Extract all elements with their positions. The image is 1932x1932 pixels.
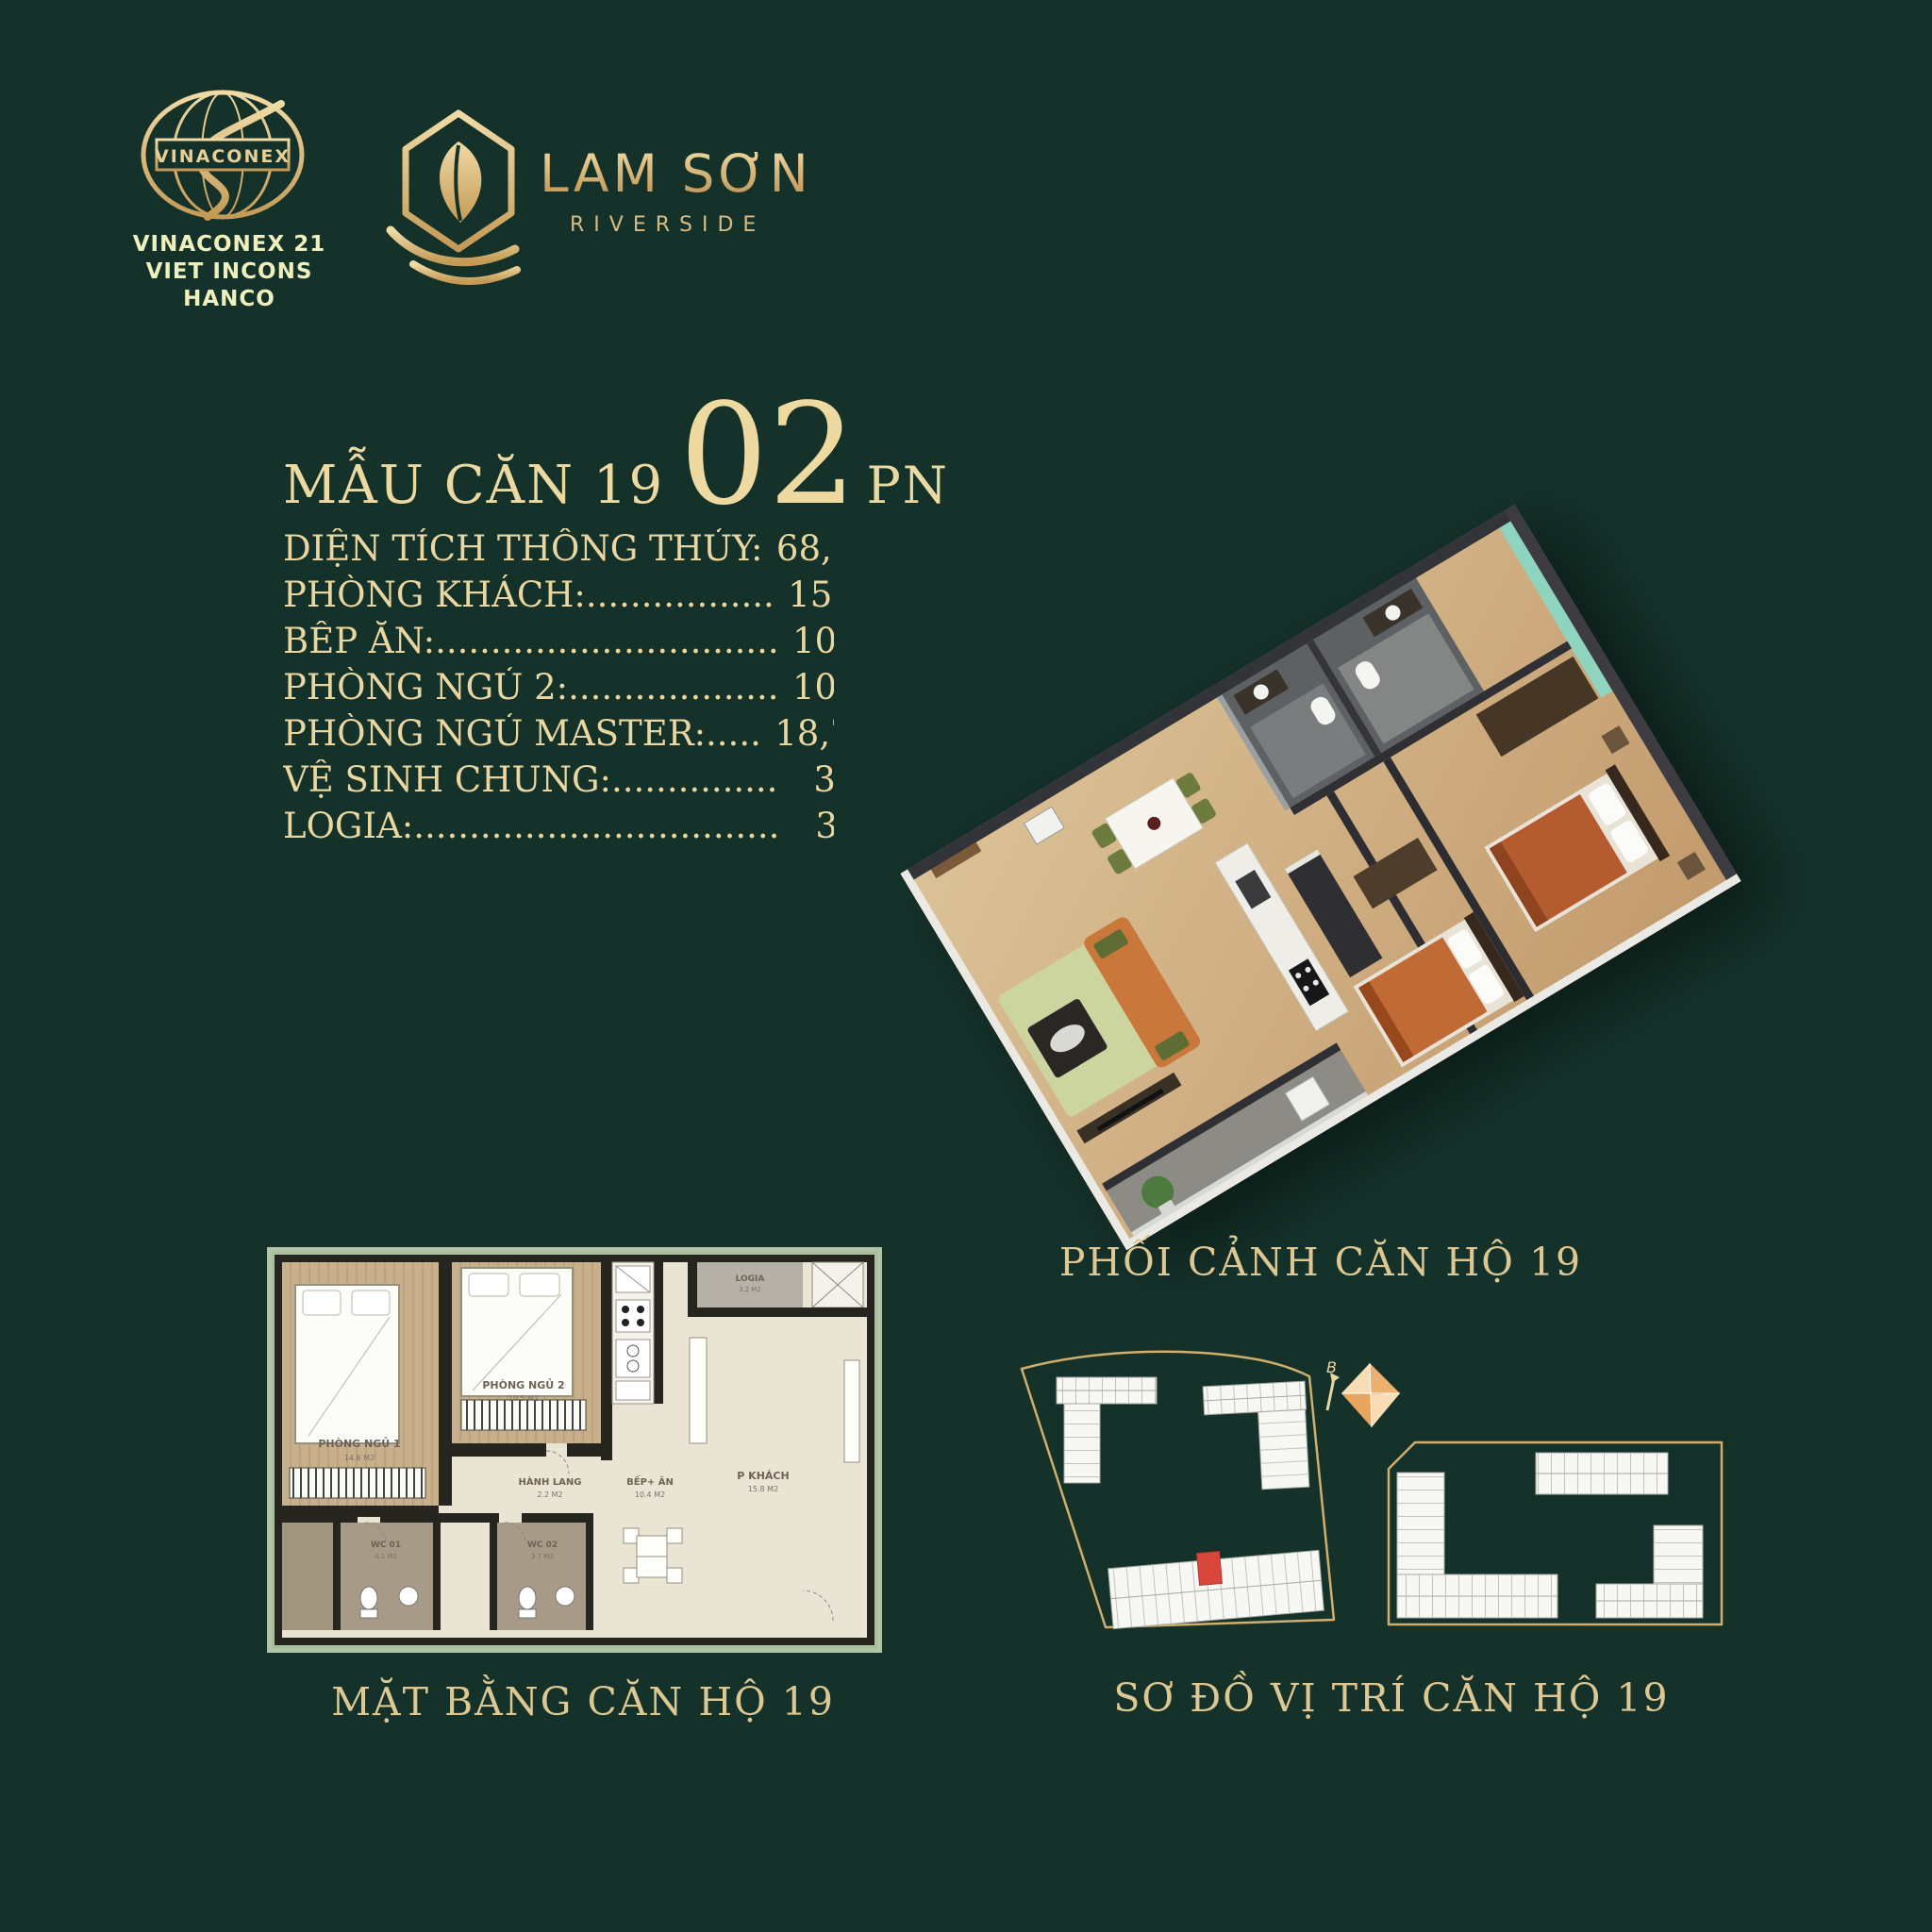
plan-room-area: 15.8 M2 — [748, 1485, 778, 1493]
plan-room-label: WC 01 — [371, 1541, 401, 1550]
plan-bed2 — [461, 1268, 573, 1396]
leaf-icon — [440, 142, 481, 223]
spec-row: VỆ SINH CHUNG:............... 3,7 M2 — [283, 759, 834, 806]
plan-room-label: PHÒNG NGỦ 1 — [318, 1437, 400, 1450]
unit-title-prefix: MẪU CĂN 19 — [283, 455, 664, 516]
developer-line: VIET INCONS — [111, 258, 347, 286]
spec-label: PHÒNG NGỦ 2:................... — [283, 667, 779, 708]
spec-value: 18,7 M2 — [761, 713, 834, 754]
plan-bed1 — [295, 1285, 399, 1443]
plan-logia — [697, 1262, 803, 1307]
project-logo-icon — [385, 106, 528, 294]
plan-room-label: WC 02 — [527, 1541, 558, 1550]
spec-label: BẾP ĂN:............................... — [283, 621, 779, 661]
unit-title-suffix: PN — [866, 456, 949, 515]
spec-value: 15,8 M2 — [774, 575, 834, 615]
developer-name-lines: VINACONEX 21 VIET INCONS HANCO — [111, 231, 347, 313]
floor-plan: PHÒNG NGỦ 1 14.6 M2 PHÒNG NGỦ 2 10.5 M2 … — [267, 1247, 882, 1653]
plan-kitchen-counter — [612, 1262, 654, 1404]
spec-row: LOGIA:................................. … — [283, 806, 834, 852]
spec-label: PHÒNG NGỦ MASTER:..... — [283, 713, 761, 754]
plan-room-area: 4.1 M2 — [375, 1553, 397, 1560]
spec-value: 10,5 M2 — [779, 667, 834, 708]
plan-room-area: 3.2 M2 — [739, 1286, 761, 1293]
site-map-caption: SƠ ĐỒ VỊ TRÍ CĂN HỘ 19 — [1080, 1675, 1703, 1721]
spec-row: PHÒNG NGỦ 2:................... 10,5 M2 — [283, 667, 834, 713]
brochure-page: VINACONEX VINACONEX 21 VIET INCONS HANCO… — [0, 0, 1932, 1932]
spec-value: 10,4 M2 — [779, 621, 834, 661]
plan-sofa — [844, 1360, 859, 1462]
spec-label: LOGIA:................................. — [283, 806, 779, 846]
developer-line: HANCO — [111, 286, 347, 313]
site-building — [1057, 1377, 1157, 1483]
spec-label: PHÒNG KHÁCH:................. — [283, 575, 774, 615]
plan-room-area: 10.5 M2 — [508, 1394, 539, 1403]
plan-room-label: LOGIA — [736, 1274, 765, 1284]
developer-line: VINACONEX 21 — [111, 231, 347, 258]
apartment-3d-render — [900, 505, 1740, 1251]
project-wordmark: LAM SƠN — [540, 143, 812, 204]
plan-wc1 — [341, 1523, 433, 1630]
spec-list: DIỆN TÍCH THÔNG THỦY: 68,5 M2 PHÒNG KHÁC… — [283, 528, 834, 852]
spec-label: VỆ SINH CHUNG:............... — [283, 759, 777, 800]
site-building — [1397, 1473, 1557, 1618]
vinaconex-logo-text: VINACONEX — [155, 146, 291, 167]
plan-tv-unit — [690, 1338, 707, 1443]
plan-room-area: 10.4 M2 — [635, 1491, 665, 1499]
plan-room-label: PHÒNG NGỦ 2 — [482, 1378, 564, 1391]
plan-room-area: 2.2 M2 — [537, 1491, 562, 1499]
highlighted-unit — [1197, 1552, 1223, 1586]
site-building-unit19 — [1108, 1542, 1324, 1628]
plan-room-label: P KHÁCH — [737, 1470, 789, 1482]
spec-label: DIỆN TÍCH THÔNG THỦY: — [283, 528, 762, 569]
plan-wardrobe2 — [461, 1400, 586, 1430]
project-wordmark-subtitle: RIVERSIDE — [570, 213, 765, 237]
plan-room-label: HÀNH LANG — [518, 1475, 581, 1488]
site-building — [1203, 1381, 1310, 1491]
plan-wc2 — [497, 1523, 586, 1630]
vinaconex-logo: VINACONEX — [140, 87, 306, 228]
spec-row: BẾP ĂN:............................... 1… — [283, 621, 834, 667]
spec-row: DIỆN TÍCH THÔNG THỦY: 68,5 M2 — [283, 528, 834, 575]
perspective-caption: PHỐI CẢNH CĂN HỘ 19 — [1038, 1240, 1604, 1285]
plan-shaft — [282, 1523, 333, 1630]
site-building — [1536, 1453, 1668, 1494]
unit-title-number: 02 — [679, 374, 857, 536]
spec-value: 68,5 M2 — [762, 528, 834, 569]
unit-title: MẪU CĂN 19 02 PN — [283, 374, 949, 536]
north-compass-icon: B — [1326, 1358, 1400, 1427]
plan-wardrobe1 — [290, 1468, 425, 1498]
plan-room-area: 14.6 M2 — [344, 1454, 375, 1462]
plan-room-area: 3.7 M2 — [531, 1553, 554, 1560]
floor-plan-caption: MẶT BẰNG CĂN HỘ 19 — [300, 1679, 866, 1724]
spec-value: 3,7 M2 — [777, 759, 834, 800]
spec-row: PHÒNG NGỦ MASTER:..... 18,7 M2 — [283, 713, 834, 759]
spec-row: PHÒNG KHÁCH:................. 15,8 M2 — [283, 575, 834, 621]
site-building — [1596, 1525, 1703, 1618]
spec-value: 3,2 M2 — [779, 806, 834, 846]
site-map: B — [1009, 1344, 1736, 1703]
